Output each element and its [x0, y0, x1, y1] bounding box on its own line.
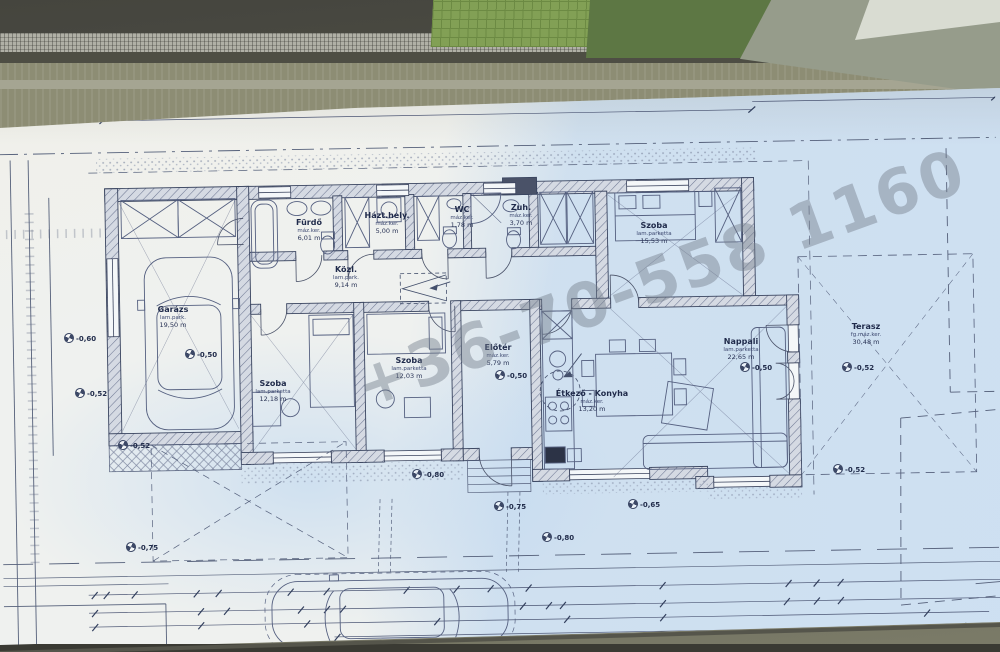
benchmark-icon [492, 499, 505, 512]
spot-elevation-value: -0,75 [138, 544, 158, 552]
room-area: 3,70 m [473, 219, 569, 227]
room-label: Zuh. máz.ker. 3,70 m [473, 203, 569, 228]
spot-elevation-value: -0,75 [506, 503, 526, 511]
spot-elevation-value: -0,60 [76, 335, 96, 343]
benchmark-icon [124, 540, 137, 553]
room-name: Közl. [298, 265, 394, 275]
room-floor-finish: máz.ker. [544, 399, 640, 406]
spot-elevation-value: -0,52 [845, 466, 865, 474]
room-name: Zuh. [473, 203, 569, 213]
room-name: Garázs [125, 305, 221, 315]
room-label: Terasz fg.máz.ker. 30,48 m [818, 322, 914, 347]
room-floor-finish: lam.parketta [225, 389, 321, 396]
green-cutting-mat [431, 0, 593, 47]
benchmark-icon [183, 347, 196, 360]
room-floor-finish: lam.park. [125, 315, 221, 322]
room-name: Szoba [225, 379, 321, 389]
spot-elevation-value: -0,50 [197, 351, 217, 359]
room-name: Nappali [693, 337, 789, 347]
benchmark-icon [831, 462, 844, 475]
room-floor-finish: lam.park. [298, 275, 394, 282]
spot-elevation-value: -0,52 [87, 390, 107, 398]
spot-elevation: -0,75 [126, 542, 158, 552]
room-area: 12,18 m [225, 395, 321, 403]
spot-elevation: -0,50 [185, 349, 217, 359]
benchmark-icon [410, 467, 423, 480]
spot-elevation: -0,60 [64, 333, 96, 343]
spot-elevation: -0,52 [842, 362, 874, 372]
spot-elevation: -0,75 [494, 501, 526, 511]
room-floor-finish: fg.máz.ker. [818, 332, 914, 339]
photo-of-floor-plan: Garázs lam.park. 19,50 m Fürdő máz.ker. … [0, 0, 1000, 652]
room-name: Terasz [818, 322, 914, 332]
room-label: Garázs lam.park. 19,50 m [125, 305, 221, 330]
benchmark-icon [738, 360, 751, 373]
room-area: 13,20 m [544, 405, 640, 413]
room-area: 9,14 m [298, 281, 394, 289]
spot-elevation: -0,80 [412, 469, 444, 479]
room-label: Étkező - Konyha máz.ker. 13,20 m [544, 389, 640, 414]
room-area: 19,50 m [125, 321, 221, 329]
olive-highlight [0, 80, 1000, 89]
benchmark-icon [73, 386, 86, 399]
room-area: 22,65 m [693, 353, 789, 361]
spot-elevation-value: -0,80 [554, 534, 574, 542]
benchmark-icon [626, 497, 639, 510]
benchmark-icon [116, 438, 129, 451]
room-label: Nappali lam.parketta 22,65 m [693, 337, 789, 362]
spot-elevation: -0,50 [740, 362, 772, 372]
benchmark-icon [540, 530, 553, 543]
spot-elevation-value: -0,52 [130, 442, 150, 450]
spot-elevation: -0,52 [75, 388, 107, 398]
spot-elevation: -0,52 [118, 440, 150, 450]
benchmark-icon [840, 360, 853, 373]
spot-elevation: -0,52 [833, 464, 865, 474]
spot-elevation-value: -0,50 [507, 372, 527, 380]
spot-elevation-value: -0,52 [854, 364, 874, 372]
room-name: Étkező - Konyha [544, 389, 640, 399]
spot-elevation: -0,65 [628, 499, 660, 509]
spot-elevation-value: -0,65 [640, 501, 660, 509]
spot-elevation-value: -0,80 [424, 471, 444, 479]
room-label: Közl. lam.park. 9,14 m [298, 265, 394, 290]
room-label: Szoba lam.parketta 12,18 m [225, 379, 321, 404]
room-area: 30,48 m [818, 338, 914, 346]
room-floor-finish: lam.parketta [693, 347, 789, 354]
spot-elevation-value: -0,50 [752, 364, 772, 372]
room-floor-finish: máz.ker. [473, 213, 569, 220]
spot-elevation: -0,80 [542, 532, 574, 542]
benchmark-icon [62, 331, 75, 344]
